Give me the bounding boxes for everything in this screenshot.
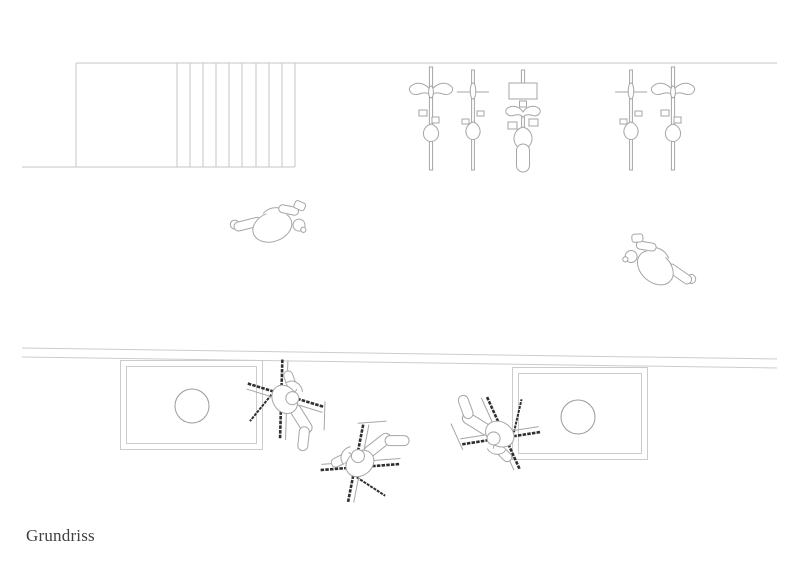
table-left bbox=[121, 361, 263, 450]
seated-figure-2 bbox=[312, 403, 429, 517]
plate-right bbox=[561, 400, 595, 434]
seated-figure-1 bbox=[231, 352, 342, 468]
walking-figure-1 bbox=[229, 199, 309, 249]
bicycle-straight-1 bbox=[457, 70, 489, 170]
walking-figure-2 bbox=[615, 230, 704, 303]
wall-band bbox=[22, 348, 777, 368]
bicycle-swept-2 bbox=[651, 67, 694, 170]
bicycle-swept-1 bbox=[409, 67, 452, 170]
table-right bbox=[513, 368, 648, 460]
bicycle-row bbox=[409, 67, 694, 172]
plan-drawing bbox=[0, 0, 800, 566]
staircase-plan bbox=[22, 63, 295, 167]
plan-title: Grundriss bbox=[26, 526, 95, 546]
plan-canvas: Grundriss bbox=[0, 0, 800, 566]
seated-figure-3 bbox=[435, 370, 551, 481]
bicycle-straight-2 bbox=[615, 70, 647, 170]
bicycle-cargo bbox=[506, 70, 540, 172]
plate-left bbox=[175, 389, 209, 423]
